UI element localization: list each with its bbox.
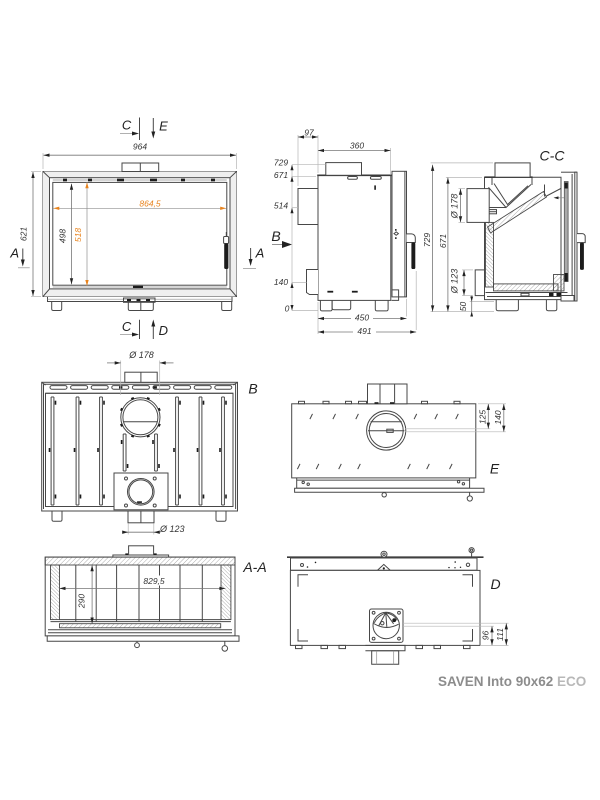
svg-text:518: 518 [73, 228, 83, 242]
svg-text:A: A [255, 246, 265, 261]
svg-text:0: 0 [285, 304, 290, 314]
svg-text:E: E [159, 119, 168, 134]
svg-text:D: D [159, 323, 168, 338]
svg-text:E: E [490, 461, 500, 477]
svg-text:50: 50 [458, 302, 468, 312]
svg-text:125: 125 [477, 410, 487, 424]
svg-text:111: 111 [495, 628, 505, 641]
svg-text:A: A [9, 246, 19, 261]
svg-text:Ø 123: Ø 123 [450, 269, 460, 295]
svg-text:290: 290 [77, 594, 87, 609]
svg-text:514: 514 [274, 201, 288, 211]
svg-text:829,5: 829,5 [143, 576, 165, 586]
svg-text:A-A: A-A [242, 559, 266, 575]
svg-text:621: 621 [19, 227, 29, 241]
svg-text:Ø 178: Ø 178 [450, 194, 460, 220]
svg-text:140: 140 [274, 277, 288, 287]
svg-text:671: 671 [274, 170, 288, 180]
svg-text:B: B [271, 228, 280, 244]
svg-text:D: D [490, 576, 500, 592]
svg-text:96: 96 [481, 631, 491, 641]
svg-text:491: 491 [357, 326, 371, 336]
svg-text:729: 729 [422, 233, 432, 247]
svg-text:C: C [122, 319, 132, 334]
svg-text:671: 671 [438, 234, 448, 248]
svg-text:C-C: C-C [540, 148, 566, 164]
svg-text:729: 729 [274, 158, 288, 168]
svg-text:498: 498 [58, 229, 68, 243]
svg-text:360: 360 [350, 141, 364, 151]
svg-text:964: 964 [133, 142, 147, 152]
svg-text:C: C [122, 118, 132, 133]
svg-text:Ø 178: Ø 178 [128, 350, 154, 360]
svg-text:SAVEN Into 90x62 ECO: SAVEN Into 90x62 ECO [438, 674, 586, 689]
svg-text:864,5: 864,5 [139, 199, 161, 209]
svg-text:97: 97 [304, 127, 314, 137]
svg-text:B: B [248, 380, 257, 396]
svg-text:450: 450 [355, 313, 369, 323]
svg-text:140: 140 [493, 410, 503, 424]
svg-text:Ø 123: Ø 123 [159, 524, 185, 534]
